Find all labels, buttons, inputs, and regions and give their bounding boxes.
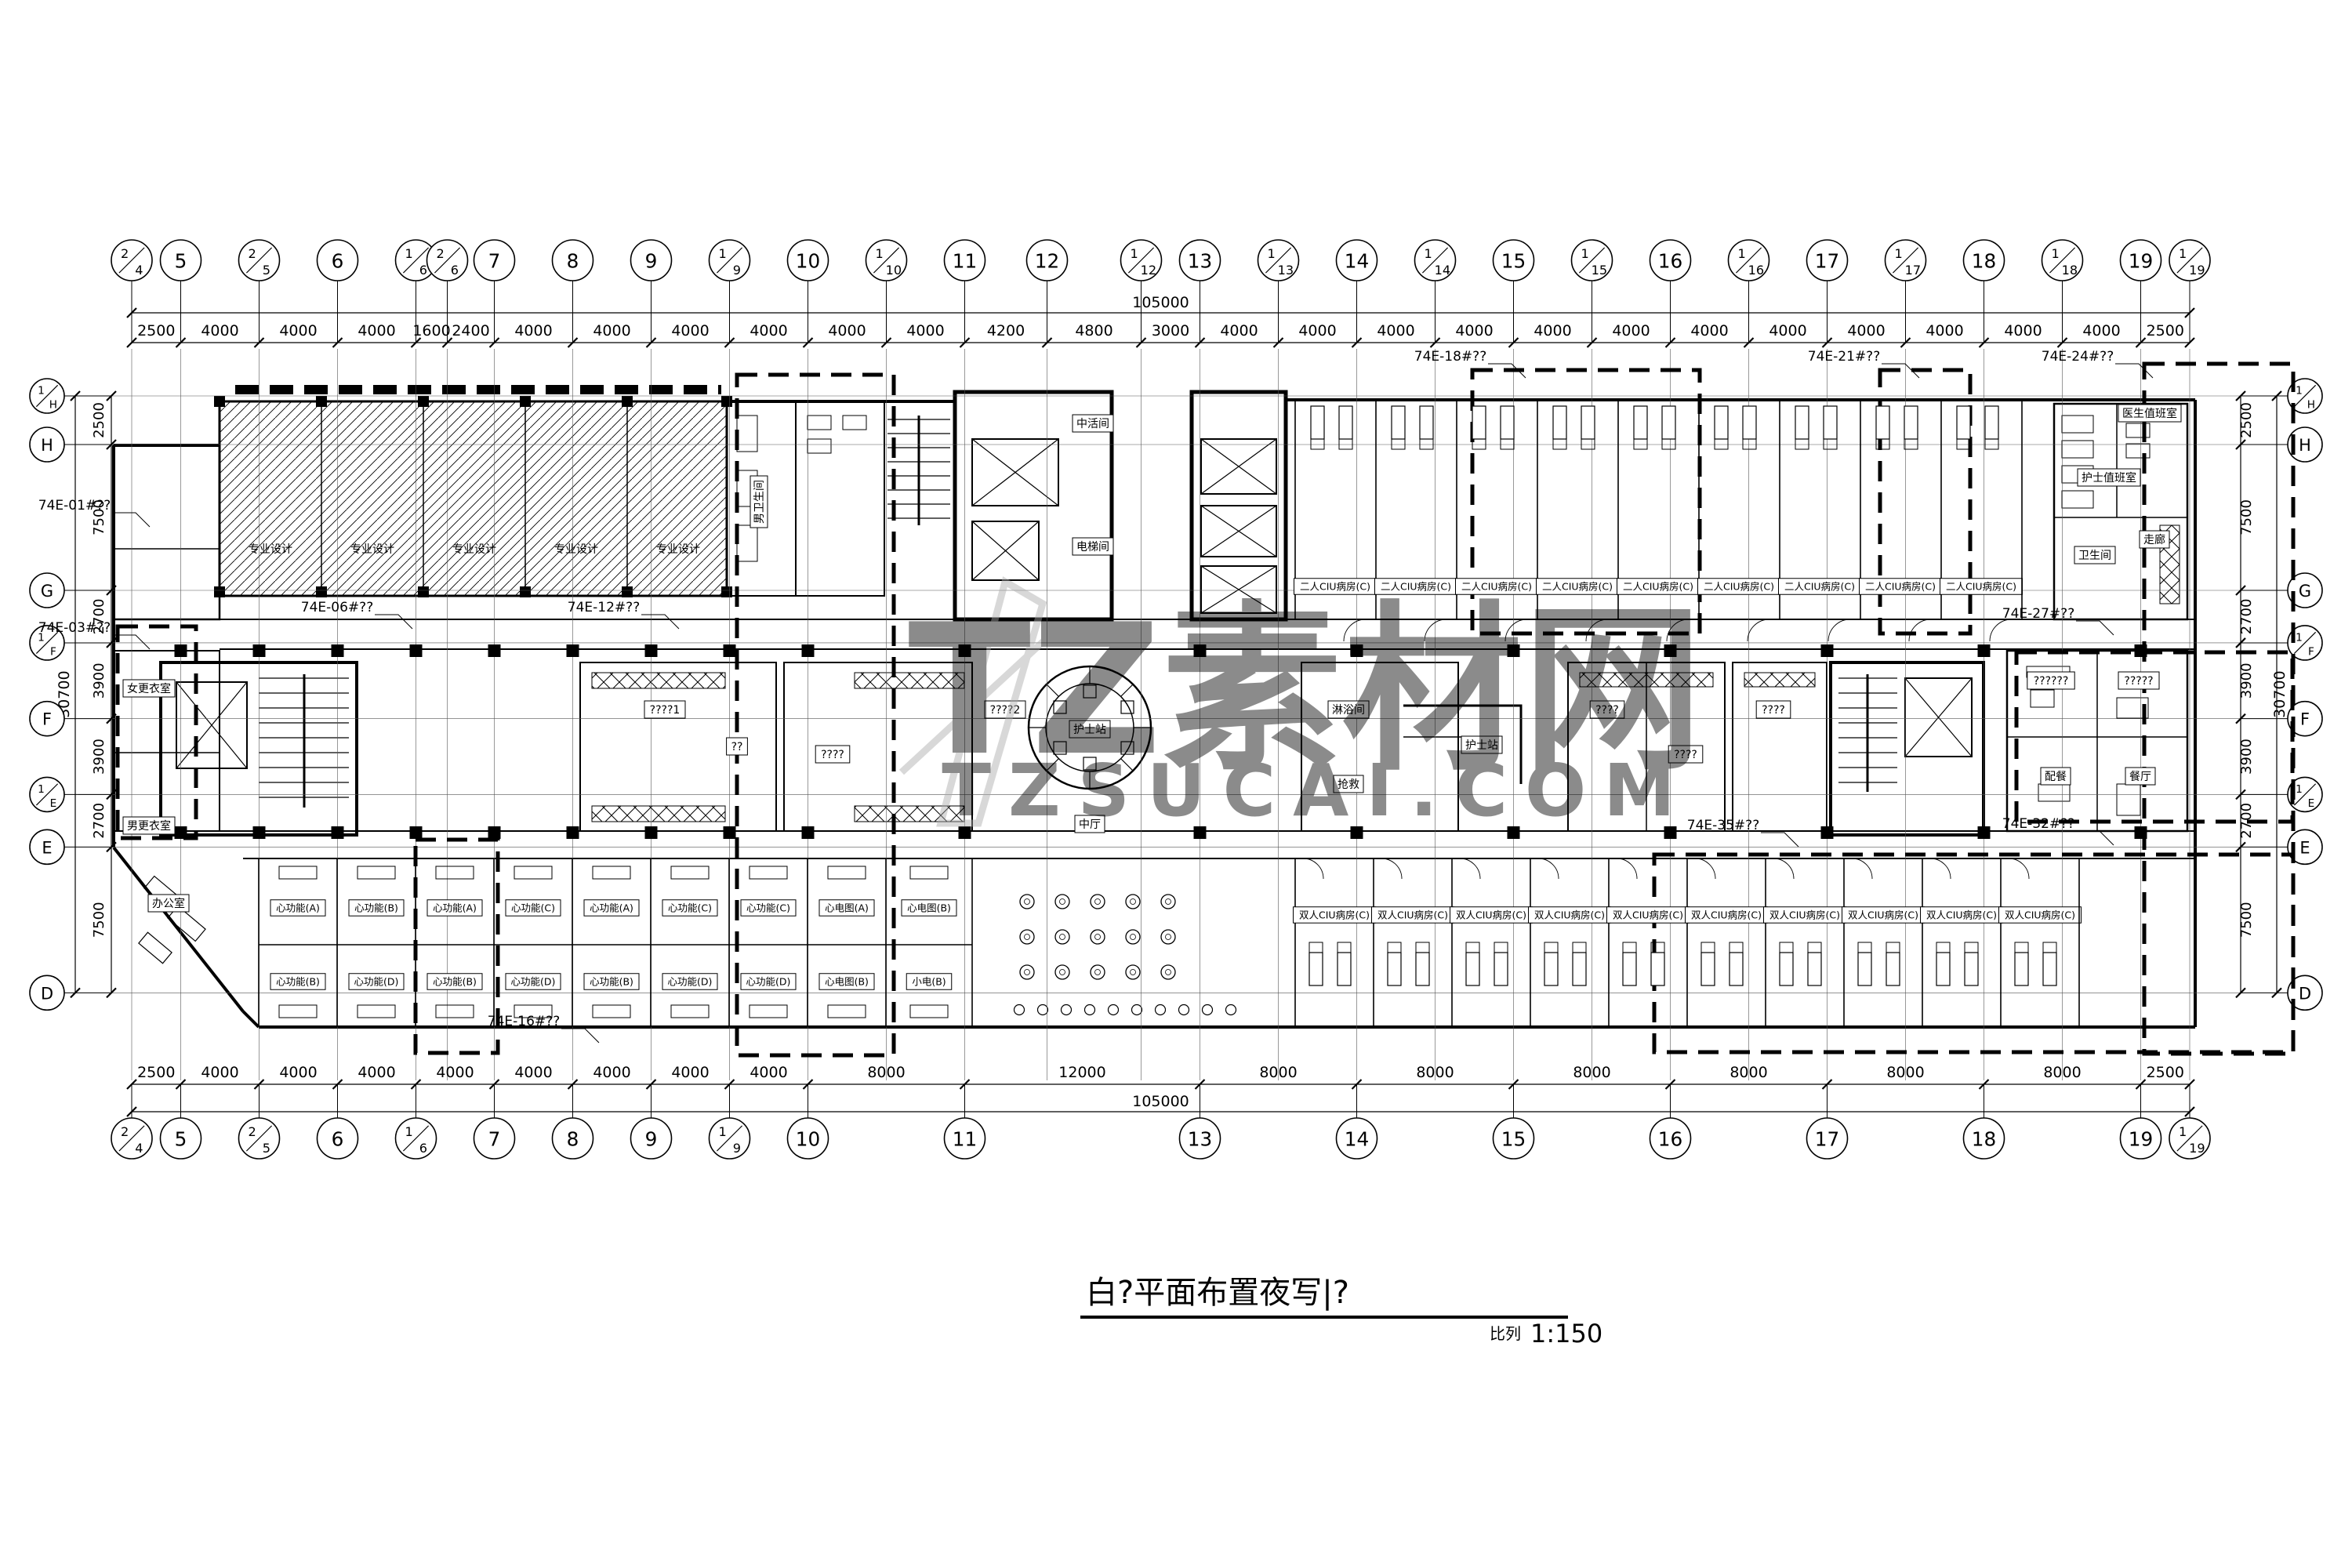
heart-function-rooms: 心功能(A)心功能(B)心功能(A)心功能(C)心功能(A)心功能(C)心功能(…: [259, 858, 972, 1027]
bed-icon: [279, 1005, 317, 1018]
zone-ref-label: 74E-03#??: [38, 620, 111, 636]
bed-icon: [593, 866, 630, 879]
room-label: 心功能(D): [746, 976, 791, 988]
dim-text: 4800: [1075, 322, 1112, 339]
grid-bubble-label: F: [2308, 645, 2314, 658]
bed-icon: [1392, 406, 1405, 439]
grid-bubble-label: 6: [419, 263, 427, 278]
bed-icon: [436, 866, 474, 879]
dim-text: 4000: [593, 1064, 630, 1081]
leader-line: [2076, 831, 2114, 845]
door-arc: [1460, 858, 1480, 879]
zone-ref-label: 74E-27#??: [2002, 606, 2074, 622]
floorplan-svg: 1050002452561626789191011011121121311314…: [0, 0, 2352, 1568]
door-arc: [1773, 858, 1794, 879]
bed-icon: [358, 866, 395, 879]
column: [2135, 644, 2147, 657]
room-label: 男更衣室: [127, 819, 171, 833]
dim-text: 2500: [137, 322, 175, 339]
room-label: ??????: [2034, 675, 2069, 688]
elevator-core-right: [1831, 662, 1984, 835]
grid-bubble-label: 11: [953, 1127, 977, 1150]
room-label: 专业设计: [350, 543, 394, 556]
room-label: 双人CIU病房(C): [2005, 909, 2075, 921]
grid-bubble-label: 1: [2296, 783, 2303, 796]
grid-bubble-label: 14: [1435, 263, 1451, 278]
grid-bubble-label: 10: [886, 263, 902, 278]
bed-icon: [828, 1005, 866, 1018]
grid-bubble-label: H: [41, 436, 53, 455]
dim-text: 4000: [279, 1064, 317, 1081]
bed-icon: [1965, 953, 1978, 985]
leader-line: [561, 1029, 599, 1043]
door-arc: [1303, 858, 1323, 879]
dim-text: 2400: [452, 322, 489, 339]
column: [567, 826, 579, 839]
bed-icon: [1494, 953, 1508, 985]
room-label: 双人CIU病房(C): [1456, 909, 1526, 921]
bed-icon: [1743, 406, 1756, 439]
dim-text: 4000: [1612, 322, 1650, 339]
grid-bubble-label: 2: [121, 246, 129, 261]
table-icon: [1161, 930, 1175, 944]
room-label: ????1: [650, 704, 681, 717]
bed-icon: [1472, 406, 1486, 439]
room-label: 女更衣室: [127, 682, 171, 695]
bed-icon: [1309, 953, 1323, 985]
dim-text: 4000: [1377, 322, 1414, 339]
table-icon: [1091, 930, 1105, 944]
dim-text: 7500: [2238, 902, 2255, 938]
dim-text: 8000: [1416, 1064, 1454, 1081]
grid-bubble-label: 6: [451, 263, 459, 278]
room-label: 双人CIU病房(C): [1534, 909, 1605, 921]
room-label: 卫生间: [2078, 550, 2111, 562]
grid-bubble-label: 12: [1035, 249, 1059, 272]
dashed-zone-box: [416, 840, 498, 1053]
room-label: 心功能(A): [590, 902, 633, 914]
dim-text: 3900: [91, 662, 107, 699]
dim-text: 2700: [91, 803, 107, 839]
grid-bubble-label: E: [50, 797, 57, 810]
bed-icon: [1957, 406, 1970, 439]
room-label: 二人CIU病房(C): [1946, 581, 2016, 593]
zone-ref-label: 74E-18#??: [1414, 349, 1486, 365]
room-label: 小电(B): [912, 976, 946, 988]
grid-right: 307001HHG1FF1EED250075002700390039002700…: [2236, 379, 2322, 1010]
dim-text: 4000: [358, 322, 395, 339]
grid-bubble-label: 1: [1738, 246, 1746, 261]
dim-text: 4000: [436, 1064, 474, 1081]
table-icon: [1132, 1005, 1142, 1015]
bed-icon: [1420, 406, 1433, 439]
grid-bubble-label: 9: [733, 1141, 741, 1156]
bed-icon: [671, 1005, 709, 1018]
room-label: 心功能(B): [590, 976, 633, 988]
zone-ref-label: 74E-16#??: [488, 1014, 560, 1029]
stair-center-icon: [887, 416, 950, 525]
column: [253, 826, 266, 839]
bed-icon: [1904, 406, 1918, 439]
grid-bubble-label: 13: [1278, 263, 1294, 278]
grid-bubble-label: 1: [2296, 384, 2303, 397]
grid-bubble-label: 1: [1895, 246, 1903, 261]
room-label: 专业设计: [656, 543, 700, 556]
grid-bubble-label: 1: [1425, 246, 1432, 261]
dim-text: 4000: [1534, 322, 1571, 339]
room-label: 办公室: [152, 897, 185, 910]
bed-icon: [1623, 953, 1636, 985]
table-icon: [1020, 895, 1034, 909]
stair-right-icon: [1838, 674, 1897, 792]
grid-bubble-label: 17: [1905, 263, 1922, 278]
grid-bottom: 1050002452561678919101113141516171819119…: [111, 1064, 2210, 1159]
angled-wall: [114, 848, 243, 1011]
watermark: TZ素材网 TZSUCAI.COM: [902, 582, 1703, 833]
room-label: ????: [821, 749, 844, 761]
grid-bubble-label: 4: [135, 263, 143, 278]
grid-bubble-label: 15: [1501, 249, 1526, 272]
table-icon: [1085, 1005, 1095, 1015]
grid-bubble-label: 13: [1188, 249, 1212, 272]
room-label: 心功能(D): [511, 976, 556, 988]
bed-icon: [750, 866, 787, 879]
grid-bubble-label: 1: [38, 783, 45, 796]
dim-text: 3000: [1152, 322, 1189, 339]
column: [488, 826, 501, 839]
zone-ref-label: 74E-01#??: [38, 498, 111, 514]
grid-bubble-label: 2: [249, 1124, 256, 1139]
table-icon: [1161, 965, 1175, 979]
dim-text: 8000: [1730, 1064, 1767, 1081]
bed-icon: [1730, 953, 1743, 985]
dim-text: 2500: [2147, 322, 2184, 339]
bed-icon: [1651, 953, 1664, 985]
room-label: 心功能(C): [511, 902, 555, 914]
scale-label: 比列: [1490, 1324, 1521, 1343]
dim-text: 3900: [2238, 739, 2255, 775]
room-label: 二人CIU病房(C): [1704, 581, 1774, 593]
room-label: 医生值班室: [2122, 407, 2177, 420]
column: [645, 826, 658, 839]
dim-text: 2500: [137, 1064, 175, 1081]
elevator-core-left: [161, 662, 357, 835]
room-label: 双人CIU病房(C): [1926, 909, 1997, 921]
grid-bubble-label: 7: [488, 1127, 501, 1150]
column: [645, 644, 658, 657]
dim-text: 4000: [358, 1064, 395, 1081]
dashed-zone-box: [118, 626, 196, 838]
bed-icon: [2015, 953, 2028, 985]
room-label: 配餐: [2045, 771, 2067, 783]
room-label: 专业设计: [554, 543, 598, 556]
grid-bubble-label: 1: [2179, 246, 2187, 261]
column: [802, 826, 815, 839]
room-label: 双人CIU病房(C): [1377, 909, 1448, 921]
table-icon: [1020, 965, 1034, 979]
dim-text: 4000: [671, 322, 709, 339]
room-label: 双人CIU病房(C): [1613, 909, 1683, 921]
door-arc: [1828, 619, 1850, 641]
grid-bubble-label: 19: [2129, 249, 2153, 272]
dim-text: 4000: [1455, 322, 1493, 339]
grid-bubble-label: 6: [332, 249, 344, 272]
bed-icon: [671, 866, 709, 879]
dim-text: 4000: [906, 322, 944, 339]
column: [802, 644, 815, 657]
dim-text: 3900: [91, 739, 107, 775]
grid-bubble-label: H: [2307, 398, 2315, 411]
room-label: 双人CIU病房(C): [1299, 909, 1370, 921]
grid-bubble-label: 13: [1188, 1127, 1212, 1150]
dim-text: 4000: [1220, 322, 1258, 339]
bed-icon: [1824, 406, 1837, 439]
grid-bubble-label: 16: [1658, 249, 1682, 272]
grid-bubble-label: 1: [1131, 246, 1138, 261]
dim-text: 8000: [1259, 1064, 1297, 1081]
grid-bubble-label: 10: [796, 1127, 820, 1150]
bed-icon: [279, 866, 317, 879]
dim-text: 2500: [91, 402, 107, 438]
grid-bubble-label: 18: [1972, 1127, 1996, 1150]
zone-ref-label: 74E-24#??: [2042, 349, 2114, 365]
bed-icon: [1339, 406, 1352, 439]
table-icon: [1062, 1005, 1072, 1015]
room-label: 心功能(B): [276, 976, 320, 988]
dim-text: 4000: [514, 1064, 552, 1081]
dim-text: 4000: [750, 1064, 787, 1081]
dim-text: 7500: [91, 902, 107, 938]
overall-dim: 30700: [2271, 670, 2288, 717]
table-icon: [1038, 1005, 1048, 1015]
grid-bubble-label: 19: [2129, 1127, 2153, 1150]
bed-icon: [1780, 953, 1793, 985]
bed-icon: [1886, 953, 1900, 985]
grid-bubble-label: 7: [488, 249, 501, 272]
dim-text: 4000: [201, 322, 238, 339]
column: [1821, 644, 1834, 657]
grid-bubble-label: 5: [263, 1141, 270, 1156]
table-icon: [1156, 1005, 1166, 1015]
bed-icon: [1388, 953, 1401, 985]
grid-bubble-label: 19: [2189, 263, 2205, 278]
bed-icon: [1553, 406, 1566, 439]
grid-bubble-label: F: [42, 710, 52, 729]
watermark-en-text: TZSUCAI.COM: [942, 749, 1693, 833]
dim-text: 4000: [1769, 322, 1806, 339]
room-label: 心电图(B): [825, 976, 869, 988]
grid-bubble-label: D: [41, 984, 53, 1003]
grid-bubble-label: 1: [2052, 246, 2060, 261]
column: [410, 644, 423, 657]
dim-text: 4000: [1847, 322, 1885, 339]
grid-bubble-label: 2: [121, 1124, 129, 1139]
zone-ref-label: 74E-12#??: [568, 600, 640, 615]
grid-bubble-label: G: [41, 582, 53, 601]
door-arc: [1381, 858, 1402, 879]
column: [410, 826, 423, 839]
room-label: 双人CIU病房(C): [1691, 909, 1762, 921]
column: [332, 826, 344, 839]
dim-text: 2500: [2238, 402, 2255, 438]
grid-bubble-label: 14: [1345, 249, 1369, 272]
room-label: 专业设计: [249, 543, 292, 556]
grid-bubble-label: 9: [645, 1127, 658, 1150]
grid-bubble-label: F: [2300, 710, 2310, 729]
dim-text: 4000: [514, 322, 552, 339]
column: [1978, 826, 1991, 839]
grid-bubble-label: 1: [719, 246, 727, 261]
dim-text: 1600: [412, 322, 450, 339]
grid-bubble-label: 14: [1345, 1127, 1369, 1150]
grid-bubble-label: F: [50, 645, 56, 658]
leader-line: [2076, 621, 2114, 635]
dim-text: 4000: [1298, 322, 1336, 339]
door-arc: [1852, 858, 1872, 879]
table-icon: [1091, 895, 1105, 909]
grid-bubble-label: 11: [953, 249, 977, 272]
dim-text: 4000: [2082, 322, 2120, 339]
dim-text: 4000: [593, 322, 630, 339]
dim-text: 4000: [1926, 322, 1963, 339]
leader-line: [2115, 364, 2153, 378]
dim-text: 2500: [2147, 1064, 2184, 1081]
dim-text: 7500: [2238, 499, 2255, 535]
grid-bubble-label: 1: [38, 384, 45, 397]
bed-icon: [1338, 953, 1351, 985]
scale-value: 1:150: [1530, 1319, 1602, 1348]
grid-bubble-label: 19: [2189, 1141, 2205, 1156]
table-icon: [1055, 965, 1069, 979]
grid-bubble-label: 18: [2062, 263, 2078, 278]
room-label: 双人CIU病房(C): [1769, 909, 1840, 921]
grid-bubble-label: 2: [249, 246, 256, 261]
grid-bubble-label: 9: [645, 249, 658, 272]
hatched-rooms: [214, 390, 732, 597]
grid-bubble-label: 10: [796, 249, 820, 272]
grid-top: 1050002452561626789191011011121121311314…: [111, 240, 2210, 347]
bed-icon: [1715, 406, 1728, 439]
leader-line: [112, 513, 150, 527]
grid-bubble-label: D: [2299, 984, 2311, 1003]
column: [175, 644, 187, 657]
dim-text: 4000: [750, 322, 787, 339]
table-icon: [1020, 930, 1034, 944]
grid-bubble-label: 8: [567, 1127, 579, 1150]
grid-bubble-label: 15: [1501, 1127, 1526, 1150]
bed-icon: [1634, 406, 1647, 439]
grid-bubble-label: 18: [1972, 249, 1996, 272]
bed-icon: [1985, 406, 1998, 439]
zone-ref-label: 74E-32#??: [2002, 816, 2074, 832]
grid-bubble-label: E: [2299, 838, 2310, 857]
room-label: 餐厅: [2129, 771, 2151, 783]
door-arc: [2009, 858, 2029, 879]
bed-icon: [593, 1005, 630, 1018]
grid-bubble-label: 4: [135, 1141, 143, 1156]
zone-ref-label: 74E-06#??: [301, 600, 373, 615]
waiting-tables: [1014, 895, 1236, 1015]
bed-icon: [358, 1005, 395, 1018]
column: [332, 644, 344, 657]
table-icon: [1091, 965, 1105, 979]
door-arc: [1617, 858, 1637, 879]
grid-bubble-label: E: [2308, 797, 2315, 810]
bed-icon: [1936, 953, 1950, 985]
column: [2135, 826, 2147, 839]
bed-icon: [1795, 406, 1809, 439]
grid-bubble-label: 1: [2179, 1124, 2187, 1139]
dim-text: 12000: [1058, 1064, 1105, 1081]
table-icon: [1055, 930, 1069, 944]
dim-text: 4000: [2004, 322, 2042, 339]
table-icon: [1161, 895, 1175, 909]
grid-bubble-label: 16: [1748, 263, 1765, 278]
bed-icon: [828, 866, 866, 879]
table-icon: [1126, 930, 1140, 944]
dim-text: 8000: [1886, 1064, 1924, 1081]
room-label: 二人CIU病房(C): [1865, 581, 1936, 593]
midright-room-c: [1733, 662, 1827, 831]
bed-icon: [1544, 953, 1558, 985]
zone-ref-label: 74E-21#??: [1808, 349, 1880, 365]
bed-icon: [514, 866, 552, 879]
column: [724, 826, 736, 839]
table-icon: [1014, 1005, 1025, 1015]
bed-icon: [1416, 953, 1429, 985]
grid-bubble-label: 17: [1815, 1127, 1839, 1150]
room-label: 心电图(A): [825, 902, 869, 914]
leader-line: [641, 615, 679, 629]
grid-bubble-label: 5: [175, 249, 187, 272]
grid-left: 307001HHG1FF1EED250075002700390039002700…: [30, 379, 116, 1010]
bed-icon: [1808, 953, 1821, 985]
dim-text: 4000: [828, 322, 866, 339]
title-block: 白?平面布置夜写|? 比列 1:150: [1080, 1275, 1602, 1348]
column: [1821, 826, 1834, 839]
zone-ref-label: 74E-35#??: [1687, 818, 1759, 833]
grid-bubble-label: 12: [1141, 263, 1157, 278]
bed-icon: [1858, 953, 1871, 985]
table-icon: [1109, 1005, 1119, 1015]
room-label: 二人CIU病房(C): [1784, 581, 1855, 593]
table-icon: [1179, 1005, 1189, 1015]
grid-bubble-label: 1: [719, 1124, 727, 1139]
bed-icon: [750, 1005, 787, 1018]
grid-bubble-label: 1: [405, 1124, 413, 1139]
room-label: 专业设计: [452, 543, 496, 556]
room-label: 中活间: [1076, 418, 1109, 430]
column: [567, 644, 579, 657]
room-label: 心功能(C): [668, 902, 712, 914]
bed-icon: [1501, 406, 1514, 439]
grid-bubble-label: 16: [1658, 1127, 1682, 1150]
grid-bubble-label: 17: [1815, 249, 1839, 272]
bed-icon: [1573, 953, 1586, 985]
column: [724, 644, 736, 657]
grid-bubble-label: 1: [405, 246, 413, 261]
door-arc: [1990, 619, 2012, 641]
grid-bubble-label: G: [2299, 582, 2311, 601]
service-block: [796, 401, 884, 596]
overall-dim: 105000: [1132, 1093, 1189, 1110]
grid-bubble-label: H: [49, 398, 57, 411]
bed-icon: [1466, 953, 1479, 985]
grid-bubble-label: 6: [332, 1127, 344, 1150]
bed-icon: [436, 1005, 474, 1018]
room-label: 心功能(B): [433, 976, 477, 988]
room-label: ????: [1762, 704, 1785, 717]
